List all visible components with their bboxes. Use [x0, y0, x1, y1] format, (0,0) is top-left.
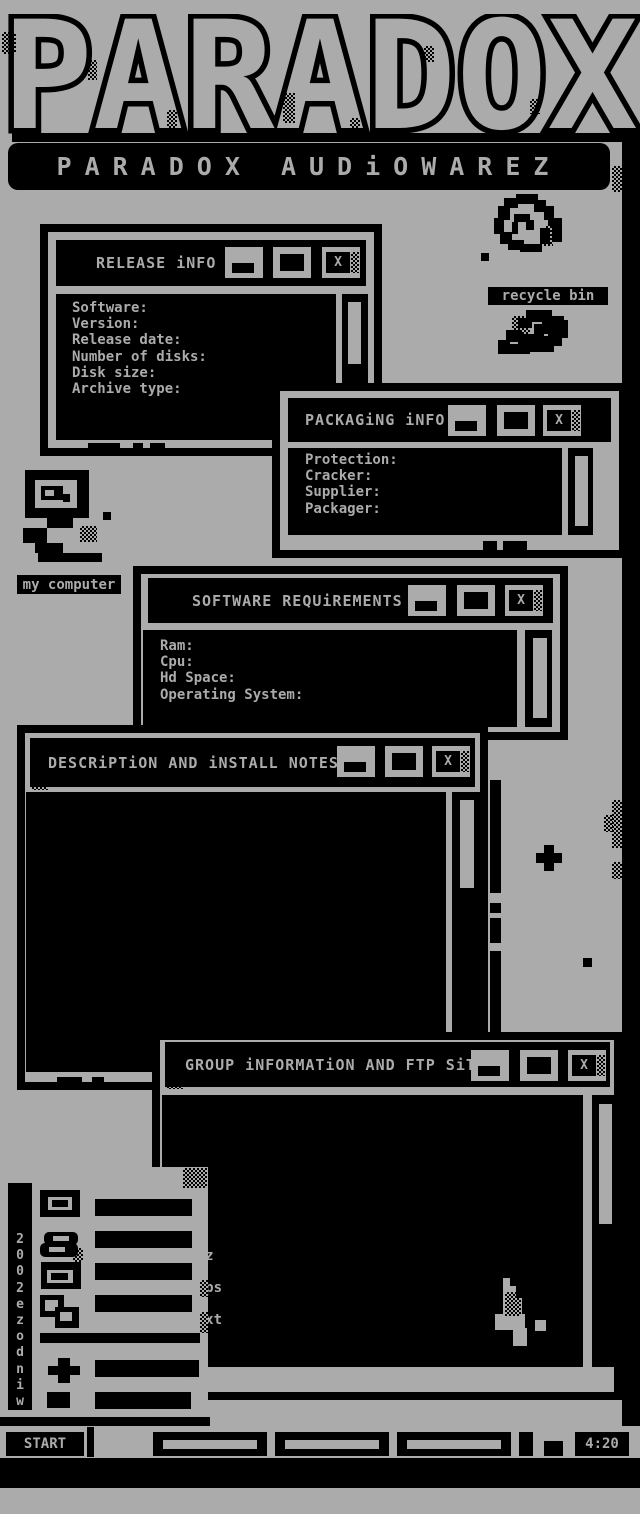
field-label: Hd Space:: [160, 670, 517, 686]
scrollbar[interactable]: [525, 630, 552, 727]
task-button[interactable]: [153, 1432, 267, 1456]
my-computer-label[interactable]: my computer: [17, 575, 121, 594]
field-label: Version:: [72, 316, 336, 332]
logo-dither: [2, 32, 16, 54]
minimize-icon: [344, 762, 366, 772]
maximize-button[interactable]: [385, 746, 423, 777]
credit-text: nfo by j33p33!0wnZ: [20, 1491, 183, 1509]
logo-dither: [530, 99, 540, 114]
plus-decoration: [536, 845, 562, 871]
field-label: Number of disks:: [72, 349, 336, 365]
field-label: Software:: [72, 300, 336, 316]
scrollbar-thumb[interactable]: [348, 302, 361, 364]
menu-item-2-1337-txt[interactable]: 2_1337.txt: [95, 1295, 192, 1312]
tray-bar: [519, 1432, 533, 1456]
logo-dither: [424, 46, 434, 62]
close-icon: X: [509, 590, 533, 611]
minimize-icon: [232, 263, 254, 273]
maximize-button[interactable]: [520, 1050, 558, 1081]
field-label: Release date:: [72, 332, 336, 348]
menu-item-0wnz-2k2[interactable]: 0wnz 2k2: [95, 1199, 192, 1216]
titlebar-dither: [58, 268, 74, 285]
packaging-info-window: PACKAGiNG iNFO X Protection: Cracker: Su…: [272, 383, 627, 558]
menu-icon-square[interactable]: [47, 1392, 70, 1408]
taskbar-clock: 4:20: [575, 1432, 629, 1456]
start-menu-sidebar: 2002ezodniw: [8, 1183, 32, 1410]
window-title: SOFTWARE REQUiREMENTS: [148, 578, 403, 623]
minimize-icon: [415, 601, 437, 611]
close-button[interactable]: X: [432, 746, 470, 777]
scrollbar-thumb[interactable]: [460, 800, 474, 888]
right-edge-strip: [622, 133, 640, 1458]
maximize-icon: [504, 412, 528, 429]
field-label: Cracker:: [305, 468, 562, 484]
close-icon: X: [547, 410, 571, 431]
group-info-window: GROUP iNFORMATiON AND FTP SiTES X: [152, 1032, 622, 1400]
recycle-bin-label[interactable]: recycle bin: [488, 287, 608, 305]
close-button[interactable]: X: [543, 405, 581, 436]
scrollbar-thumb[interactable]: [533, 638, 547, 718]
my-computer-icon[interactable]: [20, 468, 110, 564]
window-title: RELEASE iNFO: [56, 240, 216, 286]
scrollbar-thumb[interactable]: [599, 1104, 612, 1224]
close-button[interactable]: X: [505, 585, 543, 616]
menu-icon-app[interactable]: [41, 1262, 81, 1289]
packaging-content: Protection: Cracker: Supplier: Packager:: [288, 448, 562, 535]
scrollbar[interactable]: [568, 448, 593, 535]
logo-text: PARADOX: [2, 14, 638, 140]
window-title: GROUP iNFORMATiON AND FTP SiTES: [165, 1042, 496, 1087]
titlebar-dither: [167, 1072, 183, 1089]
software-requirements-window: SOFTWARE REQUiREMENTS X Ram: Cpu: Hd Spa…: [133, 566, 568, 740]
menu-separator: [40, 1333, 200, 1343]
field-label: Supplier:: [305, 484, 562, 500]
deco-bar: [490, 918, 501, 943]
maximize-icon: [464, 592, 488, 609]
logo-dither: [283, 93, 295, 123]
field-label: Ram:: [160, 638, 517, 654]
edge-dither: [612, 166, 622, 192]
recycle-bin-icon[interactable]: [494, 194, 578, 256]
task-button[interactable]: [275, 1432, 389, 1456]
desktop-dot: [481, 253, 489, 261]
taskbar-divider: [87, 1427, 94, 1457]
release-titlebar[interactable]: RELEASE iNFO: [56, 240, 366, 286]
maximize-button[interactable]: [497, 405, 535, 436]
logo-dither: [350, 118, 360, 132]
logo-baseline: [12, 133, 640, 142]
description-content: [26, 792, 446, 1072]
software-content: Ram: Cpu: Hd Space: Operating System:: [143, 630, 517, 727]
maximize-button[interactable]: [273, 247, 311, 278]
scrollbar-thumb[interactable]: [575, 456, 588, 526]
menu-item-reboot-cpu[interactable]: reboot cpu: [95, 1360, 199, 1377]
logo-dither: [167, 110, 177, 128]
menu-item-get-warez[interactable]: get warez: [95, 1231, 192, 1248]
edge-dither: [604, 815, 613, 832]
tray-square: [544, 1441, 563, 1456]
field-label: Operating System:: [160, 687, 517, 703]
minimize-icon: [455, 421, 477, 431]
menu-icon-textfile[interactable]: [40, 1295, 80, 1329]
window-title: PACKAGiNG iNFO: [288, 398, 445, 442]
field-label: Packager:: [305, 501, 562, 517]
start-button[interactable]: START: [6, 1432, 84, 1456]
sidebar-vertical-text: 2002ezodniw: [16, 1232, 25, 1410]
deco-bar: [490, 780, 501, 893]
field-label: Protection:: [305, 452, 562, 468]
banner: PARADOX AUDiOWAREZ: [8, 143, 610, 190]
edge-dither: [612, 862, 622, 879]
mouse-cursor-icon: [495, 1278, 547, 1350]
taskbar: START 4:20: [0, 1426, 640, 1458]
close-button[interactable]: X: [322, 247, 360, 278]
menu-icon-window[interactable]: [40, 1190, 80, 1217]
close-icon: X: [572, 1055, 596, 1076]
nfo-desktop: { "colors": {"bg": "#ababab", "fg": "#00…: [0, 0, 640, 1488]
menu-item-elite-apps[interactable]: elite apps: [95, 1263, 192, 1280]
start-menu: 2002ezodniw 0wnz 2k2 get warez elite app…: [0, 1167, 208, 1417]
minimize-button[interactable]: [408, 585, 446, 616]
close-icon: X: [326, 252, 350, 273]
banner-text: PARADOX AUDiOWAREZ: [57, 152, 562, 181]
minimize-button[interactable]: [225, 247, 263, 278]
scrollbar[interactable]: [452, 792, 480, 1072]
minimize-icon: [478, 1066, 500, 1076]
edge-dither: [612, 800, 622, 848]
titlebar-dither: [290, 425, 306, 442]
minimize-button[interactable]: [471, 1050, 509, 1081]
close-button[interactable]: X: [568, 1050, 606, 1081]
menu-icon-disks[interactable]: [40, 1232, 88, 1260]
scrollbar[interactable]: [592, 1095, 618, 1367]
maximize-icon: [527, 1057, 551, 1074]
footer-credit-bar: nfo by j33p33!0wnZ: [0, 1458, 640, 1488]
maximize-icon: [280, 254, 304, 271]
deco-bar: [490, 903, 501, 913]
close-icon: X: [436, 751, 460, 772]
maximize-icon: [392, 753, 416, 770]
minimize-button[interactable]: [337, 746, 375, 777]
deco-dot: [583, 958, 592, 967]
minimize-button[interactable]: [448, 405, 486, 436]
menu-item-shutdown[interactable]: shutdown: [95, 1392, 191, 1409]
window-title: DESCRiPTiON AND iNSTALL NOTES: [30, 738, 339, 787]
titlebar-dither: [150, 606, 166, 623]
field-label: Disk size:: [72, 365, 336, 381]
crumpled-paper-icon: [498, 310, 570, 358]
field-label: Cpu:: [160, 654, 517, 670]
logo-dither: [88, 60, 97, 80]
group-content: [162, 1095, 583, 1367]
menu-icon-plus[interactable]: [48, 1358, 80, 1383]
titlebar-dither: [32, 773, 48, 790]
maximize-button[interactable]: [457, 585, 495, 616]
desktop-dot: [103, 512, 111, 520]
task-button[interactable]: [397, 1432, 511, 1456]
